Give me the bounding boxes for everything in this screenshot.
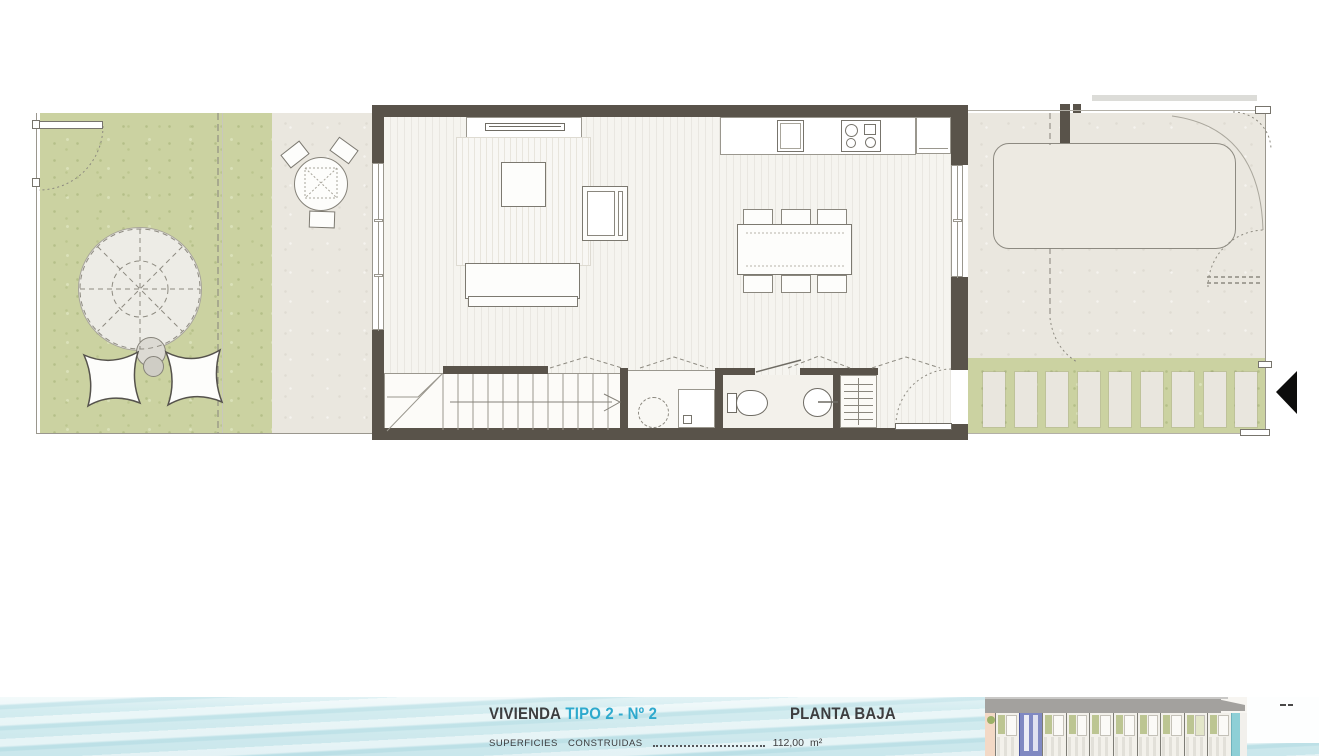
row-house: [1113, 713, 1137, 756]
unit-label: VIVIENDA: [489, 704, 561, 723]
row-house: [1137, 713, 1161, 756]
plot-boundaries: [36, 111, 1266, 434]
thumb-mark: [1280, 704, 1286, 706]
gate-post: [32, 178, 40, 187]
plot-division-line: [218, 113, 223, 433]
entrance-arrow-icon: [1276, 371, 1297, 414]
surface-value: 112,00: [773, 737, 804, 749]
cushion: [84, 352, 140, 406]
parasol-spokes: [80, 229, 200, 349]
vehicle-gate: [1255, 106, 1271, 114]
vehicle-gate-swing: [1172, 116, 1263, 230]
site-plan-thumbnail: [985, 697, 1247, 756]
parking-division-line: [1050, 113, 1077, 362]
outdoor-table-detail: [305, 168, 337, 198]
entrance-door-leaf: [895, 423, 952, 430]
floor-title: PLANTA BAJA: [790, 704, 896, 724]
pool-strip: [1231, 713, 1240, 756]
floor-plan-sheet: VIVIENDA TIPO 2 - Nº 2 PLANTA BAJA SUPER…: [0, 0, 1319, 756]
plan-linework: [0, 0, 1319, 756]
row-house: [1042, 713, 1066, 756]
wardrobe-fold-symbols: [550, 356, 940, 368]
rear-gate: [1240, 429, 1270, 436]
entrance-door-swing-arc: [896, 369, 952, 425]
grate-symbol: [1207, 277, 1262, 283]
surface-unit: m²: [810, 737, 822, 749]
cushions: [84, 350, 222, 406]
gate-post: [32, 120, 40, 129]
thumb-margin: [1240, 713, 1247, 756]
garden-gate: [38, 121, 103, 129]
unit-type: TIPO 2 - Nº 2: [565, 704, 657, 723]
road-ramp: [1217, 699, 1245, 711]
side-gate: [1258, 361, 1272, 368]
cushion: [166, 350, 222, 405]
stair-direction-arrow: [450, 394, 620, 411]
chair-tuck-lines: [746, 233, 845, 266]
row-house: [1089, 713, 1113, 756]
pedestrian-gate-arc: [1208, 230, 1265, 287]
unit-slot: [1033, 715, 1038, 751]
row-house: [1160, 713, 1184, 756]
row-house: [1184, 713, 1208, 756]
tree-dot: [987, 716, 995, 724]
row-house: [1207, 713, 1231, 756]
surface-row: SUPERFICIES CONSTRUIDAS 112,00 m²: [489, 737, 822, 749]
thumb-mark: [1288, 704, 1293, 706]
dotted-leader: [653, 745, 765, 747]
row-house: [1066, 713, 1090, 756]
wc-door-leaf: [756, 360, 801, 372]
unit-slot: [1024, 715, 1029, 751]
road: [985, 699, 1221, 713]
highlighted-unit: [1019, 713, 1043, 756]
housing-row: [995, 713, 1231, 756]
surface-label: SUPERFICIES CONSTRUIDAS: [489, 738, 643, 749]
gate-swing-arc: [39, 126, 103, 190]
row-house: [995, 713, 1019, 756]
unit-title: VIVIENDA TIPO 2 - Nº 2: [489, 704, 657, 724]
